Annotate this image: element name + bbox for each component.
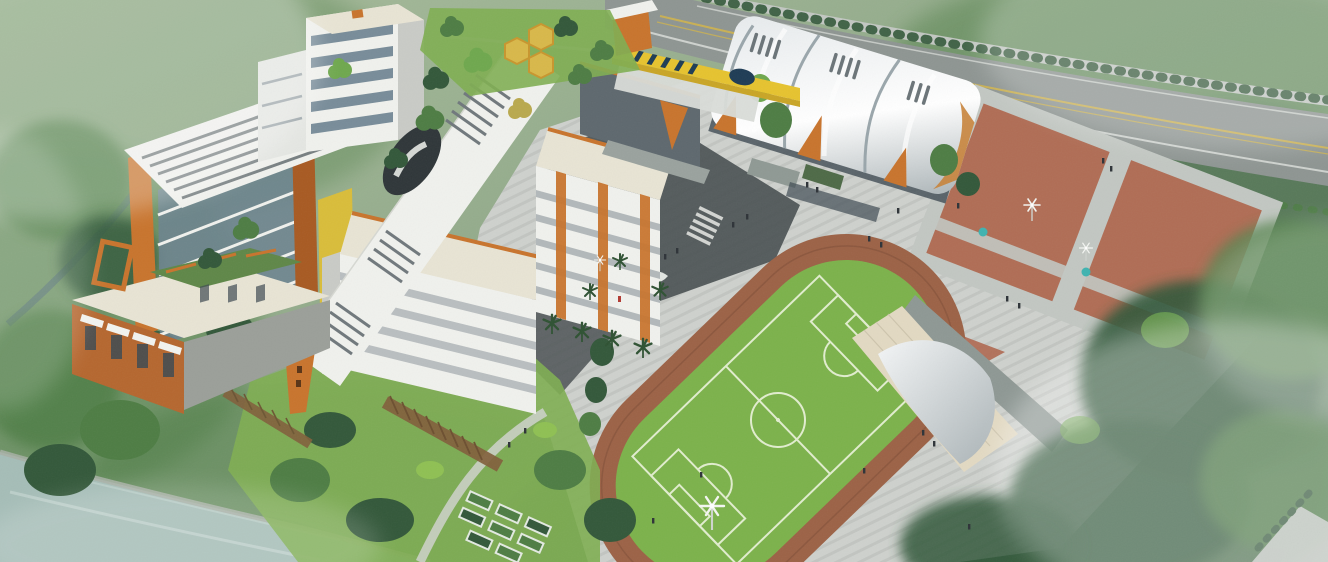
scene-canvas: Aerial architectural rendering of a scho… (0, 0, 1328, 562)
campus-aerial-rendering: Aerial architectural rendering of a scho… (0, 0, 1328, 562)
grain-texture (0, 0, 1328, 562)
